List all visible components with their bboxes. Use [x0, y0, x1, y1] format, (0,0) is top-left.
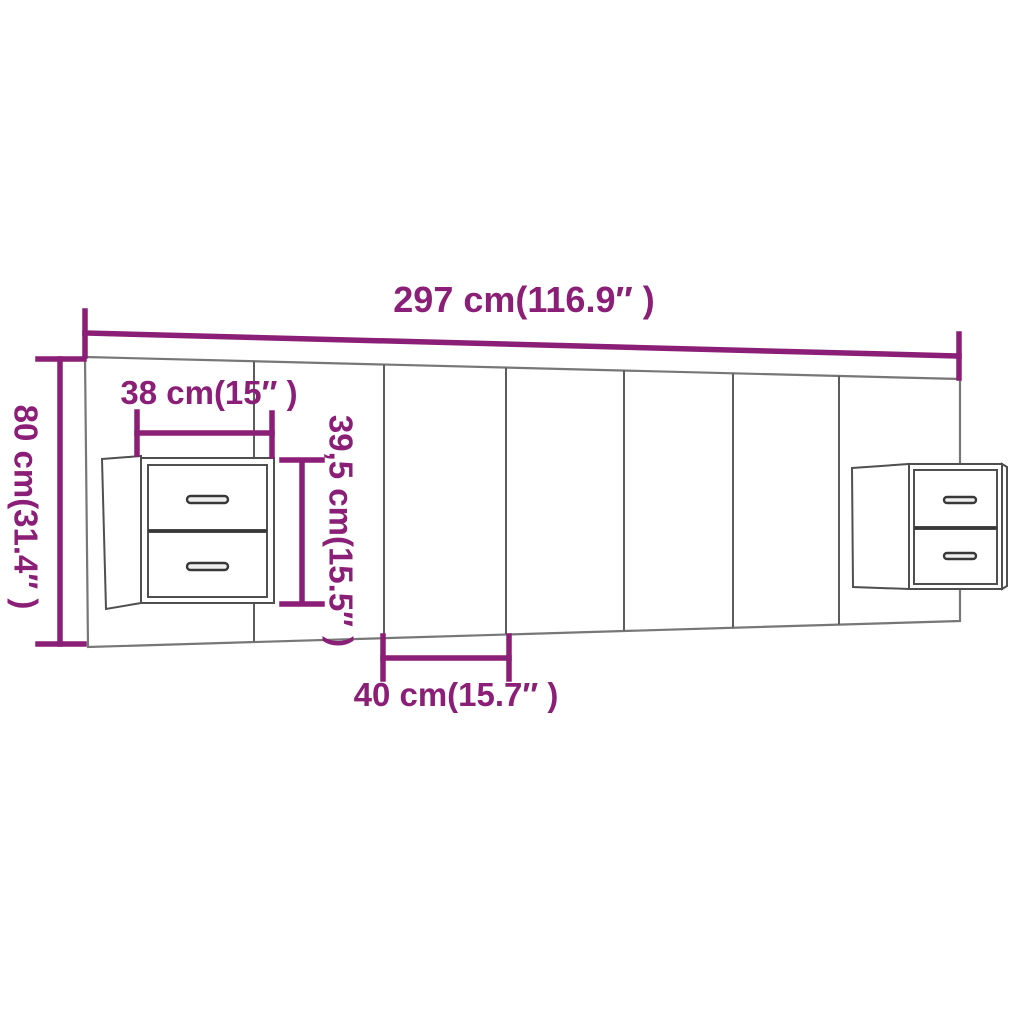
drawer-handle-icon [944, 497, 976, 503]
cabinet-width-label: 38 cm(15″ ) [120, 374, 297, 411]
right-bedside-cabinet [852, 464, 1007, 589]
drawer-handle-icon [187, 563, 228, 570]
cabinet-side-panel [852, 464, 909, 589]
height-label: 80 cm(31.4″ ) [8, 405, 45, 610]
panel-width-label: 40 cm(15.7″ ) [354, 676, 559, 713]
diagram-canvas: 297 cm(116.9″ ) 80 cm(31.4″ ) 38 cm(15″ … [0, 0, 1024, 1024]
total-width-label: 297 cm(116.9″ ) [393, 279, 654, 320]
dimension-diagram: 297 cm(116.9″ ) 80 cm(31.4″ ) 38 cm(15″ … [0, 0, 1024, 1024]
drawer-handle-icon [944, 553, 976, 559]
dim-panel-width [383, 636, 509, 679]
cabinet-height-label: 39,5 cm(15.5″ ) [323, 415, 360, 647]
drawer-handle-icon [187, 496, 228, 503]
cabinet-side-panel [102, 456, 141, 609]
left-bedside-cabinet [102, 456, 274, 609]
cabinet-edge-strip [1002, 464, 1007, 589]
dim-line [85, 333, 959, 356]
